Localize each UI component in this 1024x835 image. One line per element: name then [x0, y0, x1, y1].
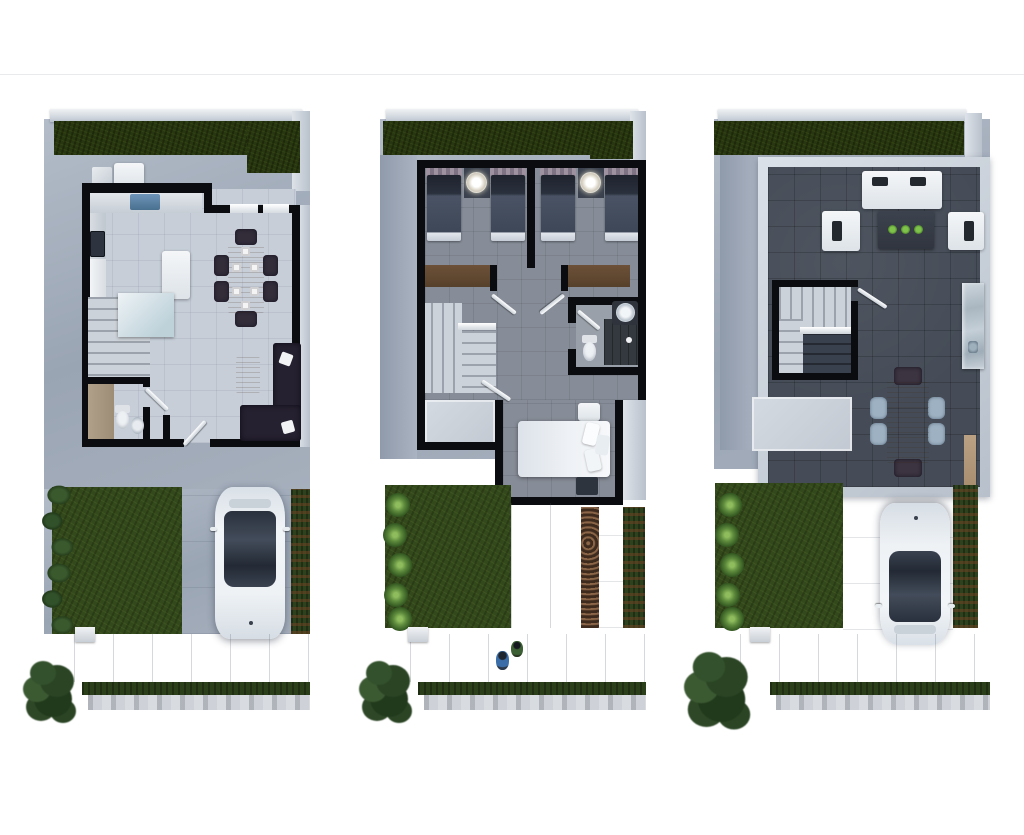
side-hedge [953, 485, 978, 628]
place-setting [250, 263, 259, 272]
wall-step [204, 183, 212, 213]
rear-grass-corner [590, 121, 633, 159]
wardrobe-wall-stub [561, 265, 568, 291]
armchair-cushion [832, 221, 842, 241]
street-paving [776, 695, 990, 710]
shrub-plant [716, 583, 740, 607]
car-badge [249, 621, 253, 625]
wall-bath-right-a [143, 377, 150, 387]
kitchen-island [162, 251, 190, 299]
side-paving [599, 503, 623, 628]
potted-plant [901, 225, 910, 234]
wardrobe-wall-stub [490, 265, 497, 291]
bathroom-wall-left-a [568, 305, 576, 323]
sidewalk [74, 634, 310, 682]
bar-sink [968, 341, 978, 353]
dining-chair [214, 281, 229, 302]
shrub-plant [720, 553, 744, 577]
shower-head [626, 337, 632, 343]
dining-chair [870, 397, 887, 419]
place-setting [250, 287, 259, 296]
dining-table [887, 381, 929, 463]
dining-chair [928, 423, 945, 445]
ground-floor-plan [42, 105, 312, 745]
wall-bath-top [82, 377, 150, 384]
stair-railing [800, 327, 851, 334]
car-glass [889, 551, 941, 622]
car-mirror-right [948, 604, 955, 608]
place-setting [241, 301, 250, 310]
car-badge [914, 516, 918, 520]
twin-bed [605, 175, 639, 241]
sofa-cushion [872, 177, 888, 186]
dining-chair [870, 423, 887, 445]
dining-chair [263, 255, 278, 276]
toilet [583, 342, 596, 361]
shrub-plant [715, 523, 739, 547]
stove [90, 231, 105, 257]
street-paving [424, 695, 646, 710]
shrub-plant [386, 493, 410, 517]
potted-plant [914, 225, 923, 234]
street-hedge-strip [770, 682, 990, 695]
west-walkway [380, 155, 417, 459]
roof-terrace-plan [712, 105, 992, 745]
shrub-plant [718, 493, 742, 517]
porch-roof-slab [425, 400, 495, 446]
rear-grass-corner [247, 121, 300, 173]
utility-box [750, 627, 770, 642]
twin-bed [541, 175, 575, 241]
coffee-table [236, 357, 260, 393]
wardrobe [420, 265, 490, 287]
side-hedge [623, 507, 645, 628]
rear-grass-strip [714, 121, 964, 155]
car-glass [224, 511, 276, 587]
place-setting [241, 247, 250, 256]
shrub-plant [383, 523, 407, 547]
pedestrian-adult [496, 651, 509, 670]
car-mirror-left [210, 527, 217, 531]
master-wall-east [615, 400, 623, 505]
dining-chair [235, 311, 257, 327]
lower-roof-slab [752, 397, 852, 451]
gravel-strip [581, 507, 599, 628]
stairwell-wall-top [772, 280, 858, 287]
wall-bath-right-b [143, 407, 150, 447]
car-mirror-left [875, 604, 882, 608]
wall-east [638, 160, 646, 400]
armchair-cushion [964, 221, 974, 241]
tree [366, 661, 392, 685]
utility-box [408, 627, 428, 642]
place-setting [232, 263, 241, 272]
round-sink [616, 303, 635, 322]
street-paving [88, 695, 310, 710]
car-mirror-right [283, 527, 290, 531]
garden-path [511, 503, 581, 628]
stairwell-wall-left [772, 280, 779, 380]
nightstand-dark [576, 477, 598, 495]
street-hedge-strip [418, 682, 646, 695]
wall-south-left [417, 442, 503, 450]
east-ledge [623, 400, 646, 500]
wall-west [417, 160, 425, 450]
nightstand [578, 403, 600, 421]
street-hedge-strip [82, 682, 310, 695]
toilet [116, 411, 129, 429]
dining-chair [928, 397, 945, 419]
tree [30, 661, 56, 685]
upper-floor-plan [378, 105, 648, 745]
stair-landing [118, 293, 174, 337]
bathroom-wall-bottom [568, 367, 646, 375]
shrub-border [42, 483, 76, 635]
sidewalk [410, 634, 646, 682]
twin-bed [427, 175, 461, 241]
bedroom-divider-wall [527, 168, 535, 268]
dining-chair [263, 281, 278, 302]
kitchen-sink [130, 194, 160, 210]
stairwell-wall-right [851, 301, 858, 380]
dining-chair [214, 255, 229, 276]
pedestrian-child [511, 641, 523, 657]
utility-mat [88, 384, 114, 439]
car-rear-trim [229, 499, 271, 508]
shower [604, 319, 638, 365]
potted-plant [888, 225, 897, 234]
wall-top-right-a [212, 205, 230, 213]
shrub-plant [388, 553, 412, 577]
refrigerator [90, 259, 106, 297]
sofa-cushion [910, 177, 926, 186]
stair-railing [458, 323, 496, 330]
window-sill-1 [230, 204, 258, 213]
bar-counter [962, 283, 984, 369]
pillow [595, 434, 611, 456]
car-rear-trim [894, 625, 936, 634]
wall-top-left [82, 183, 212, 193]
wall-entry-stub [163, 415, 170, 447]
wash-basin [131, 417, 144, 434]
place-setting [232, 287, 241, 296]
stairs-upper-flight [420, 303, 462, 393]
floorplan-triptych-canvas [0, 0, 1024, 835]
twin-bed [491, 175, 525, 241]
wardrobe [568, 265, 630, 287]
shrub-plant [720, 607, 744, 631]
side-hedge [291, 489, 310, 634]
sidewalk [740, 634, 990, 682]
stair-void [802, 333, 851, 373]
wall-north [417, 160, 646, 168]
tree [693, 652, 726, 682]
header-divider-line [0, 74, 1024, 75]
ceiling-lamp [580, 172, 601, 193]
car [880, 503, 950, 645]
ceiling-lamp [466, 172, 487, 193]
car [215, 487, 285, 639]
stairwell-wall-bottom [772, 373, 858, 380]
window-sill-2 [263, 204, 289, 213]
shrub-plant [384, 583, 408, 607]
utility-box [75, 627, 95, 642]
